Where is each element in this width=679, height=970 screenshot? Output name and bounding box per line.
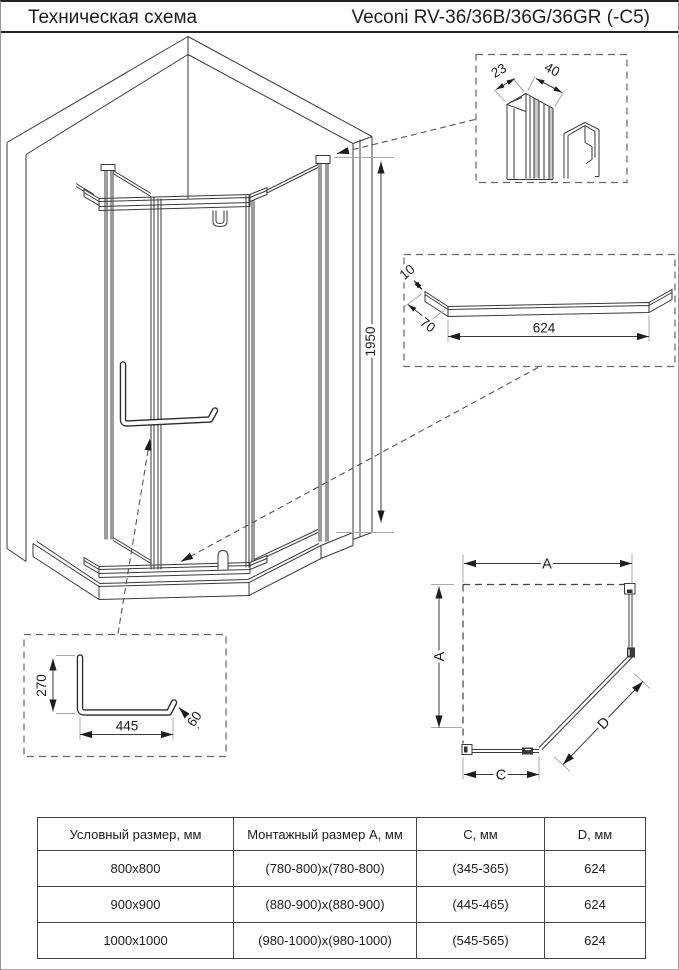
table-header-d: D, мм (545, 818, 646, 851)
table-cell: (780-800)x(780-800) (234, 851, 417, 887)
handle-detail-frame (24, 635, 226, 757)
table-cell: (545-565) (417, 923, 545, 959)
handle-drawing (80, 658, 174, 713)
table-cell: 624 (545, 923, 646, 959)
shower-tray (33, 533, 353, 600)
fixed-glass-panels (76, 165, 318, 564)
handle-dim-60: 60 (184, 708, 205, 729)
table-cell: (345-365) (417, 851, 545, 887)
technical-scheme-page: { "header": { "title_left": "Техническая… (0, 0, 679, 970)
table-header-row: Условный размер, мм Монтажный размер А, … (38, 818, 646, 851)
handle-detail-dimensions: 270 445 60 (34, 656, 205, 740)
technical-drawing: 1950 23 40 (1, 2, 679, 812)
plan-view: A A C D (431, 555, 650, 784)
table-cell: (980-1000)x(980-1000) (234, 923, 417, 959)
table-header-nominal-size: Условный размер, мм (38, 818, 234, 851)
table-header-c: С, мм (417, 818, 545, 851)
main-isometric-drawing (7, 37, 372, 600)
table-cell: 900x900 (38, 887, 234, 923)
plan-dim-d: D (595, 714, 614, 733)
bar-dim-10: 10 (397, 261, 418, 282)
right-wall-profile (316, 156, 330, 542)
stabilizer-bar-detail: 10 70 624 (397, 255, 675, 367)
profile-dim-40: 40 (542, 59, 562, 79)
table-cell: (880-900)x(880-900) (234, 887, 417, 923)
height-dimension-label: 1950 (363, 326, 378, 356)
table-row: 1000x1000 (980-1000)x(980-1000) (545-565… (38, 923, 646, 959)
left-wall-profile (101, 165, 115, 540)
table-header-mounting-size: Монтажный размер А, мм (234, 818, 417, 851)
handle-dim-270: 270 (34, 674, 49, 697)
table-cell: 624 (545, 887, 646, 923)
table-cell: 1000x1000 (38, 923, 234, 959)
table-cell: 800x800 (38, 851, 234, 887)
plan-dim-a-left: A (432, 651, 448, 661)
bar-drawing (425, 290, 672, 317)
plan-dim-c: C (496, 768, 506, 784)
back-walls (7, 37, 372, 562)
table-row: 900x900 (880-900)x(880-900) (445-465) 62… (38, 887, 646, 923)
door-panel (151, 196, 254, 570)
plan-dim-a-top: A (542, 557, 552, 573)
handle-detail: 270 445 60 (24, 635, 226, 757)
handle-dim-445: 445 (116, 719, 139, 734)
wall-profile-detail: 23 40 (476, 55, 627, 183)
table-cell: 624 (545, 851, 646, 887)
profile-dim-23: 23 (488, 60, 509, 81)
bar-dim-624: 624 (533, 321, 556, 336)
size-table: Условный размер, мм Монтажный размер А, … (37, 817, 646, 959)
table-cell: (445-465) (417, 887, 545, 923)
height-dimension: 1950 (334, 158, 394, 533)
door-handle (123, 365, 215, 424)
table-row: 800x800 (780-800)x(780-800) (345-365) 62… (38, 851, 646, 887)
bottom-bar (84, 551, 267, 578)
profile-cross-sections (507, 94, 599, 180)
